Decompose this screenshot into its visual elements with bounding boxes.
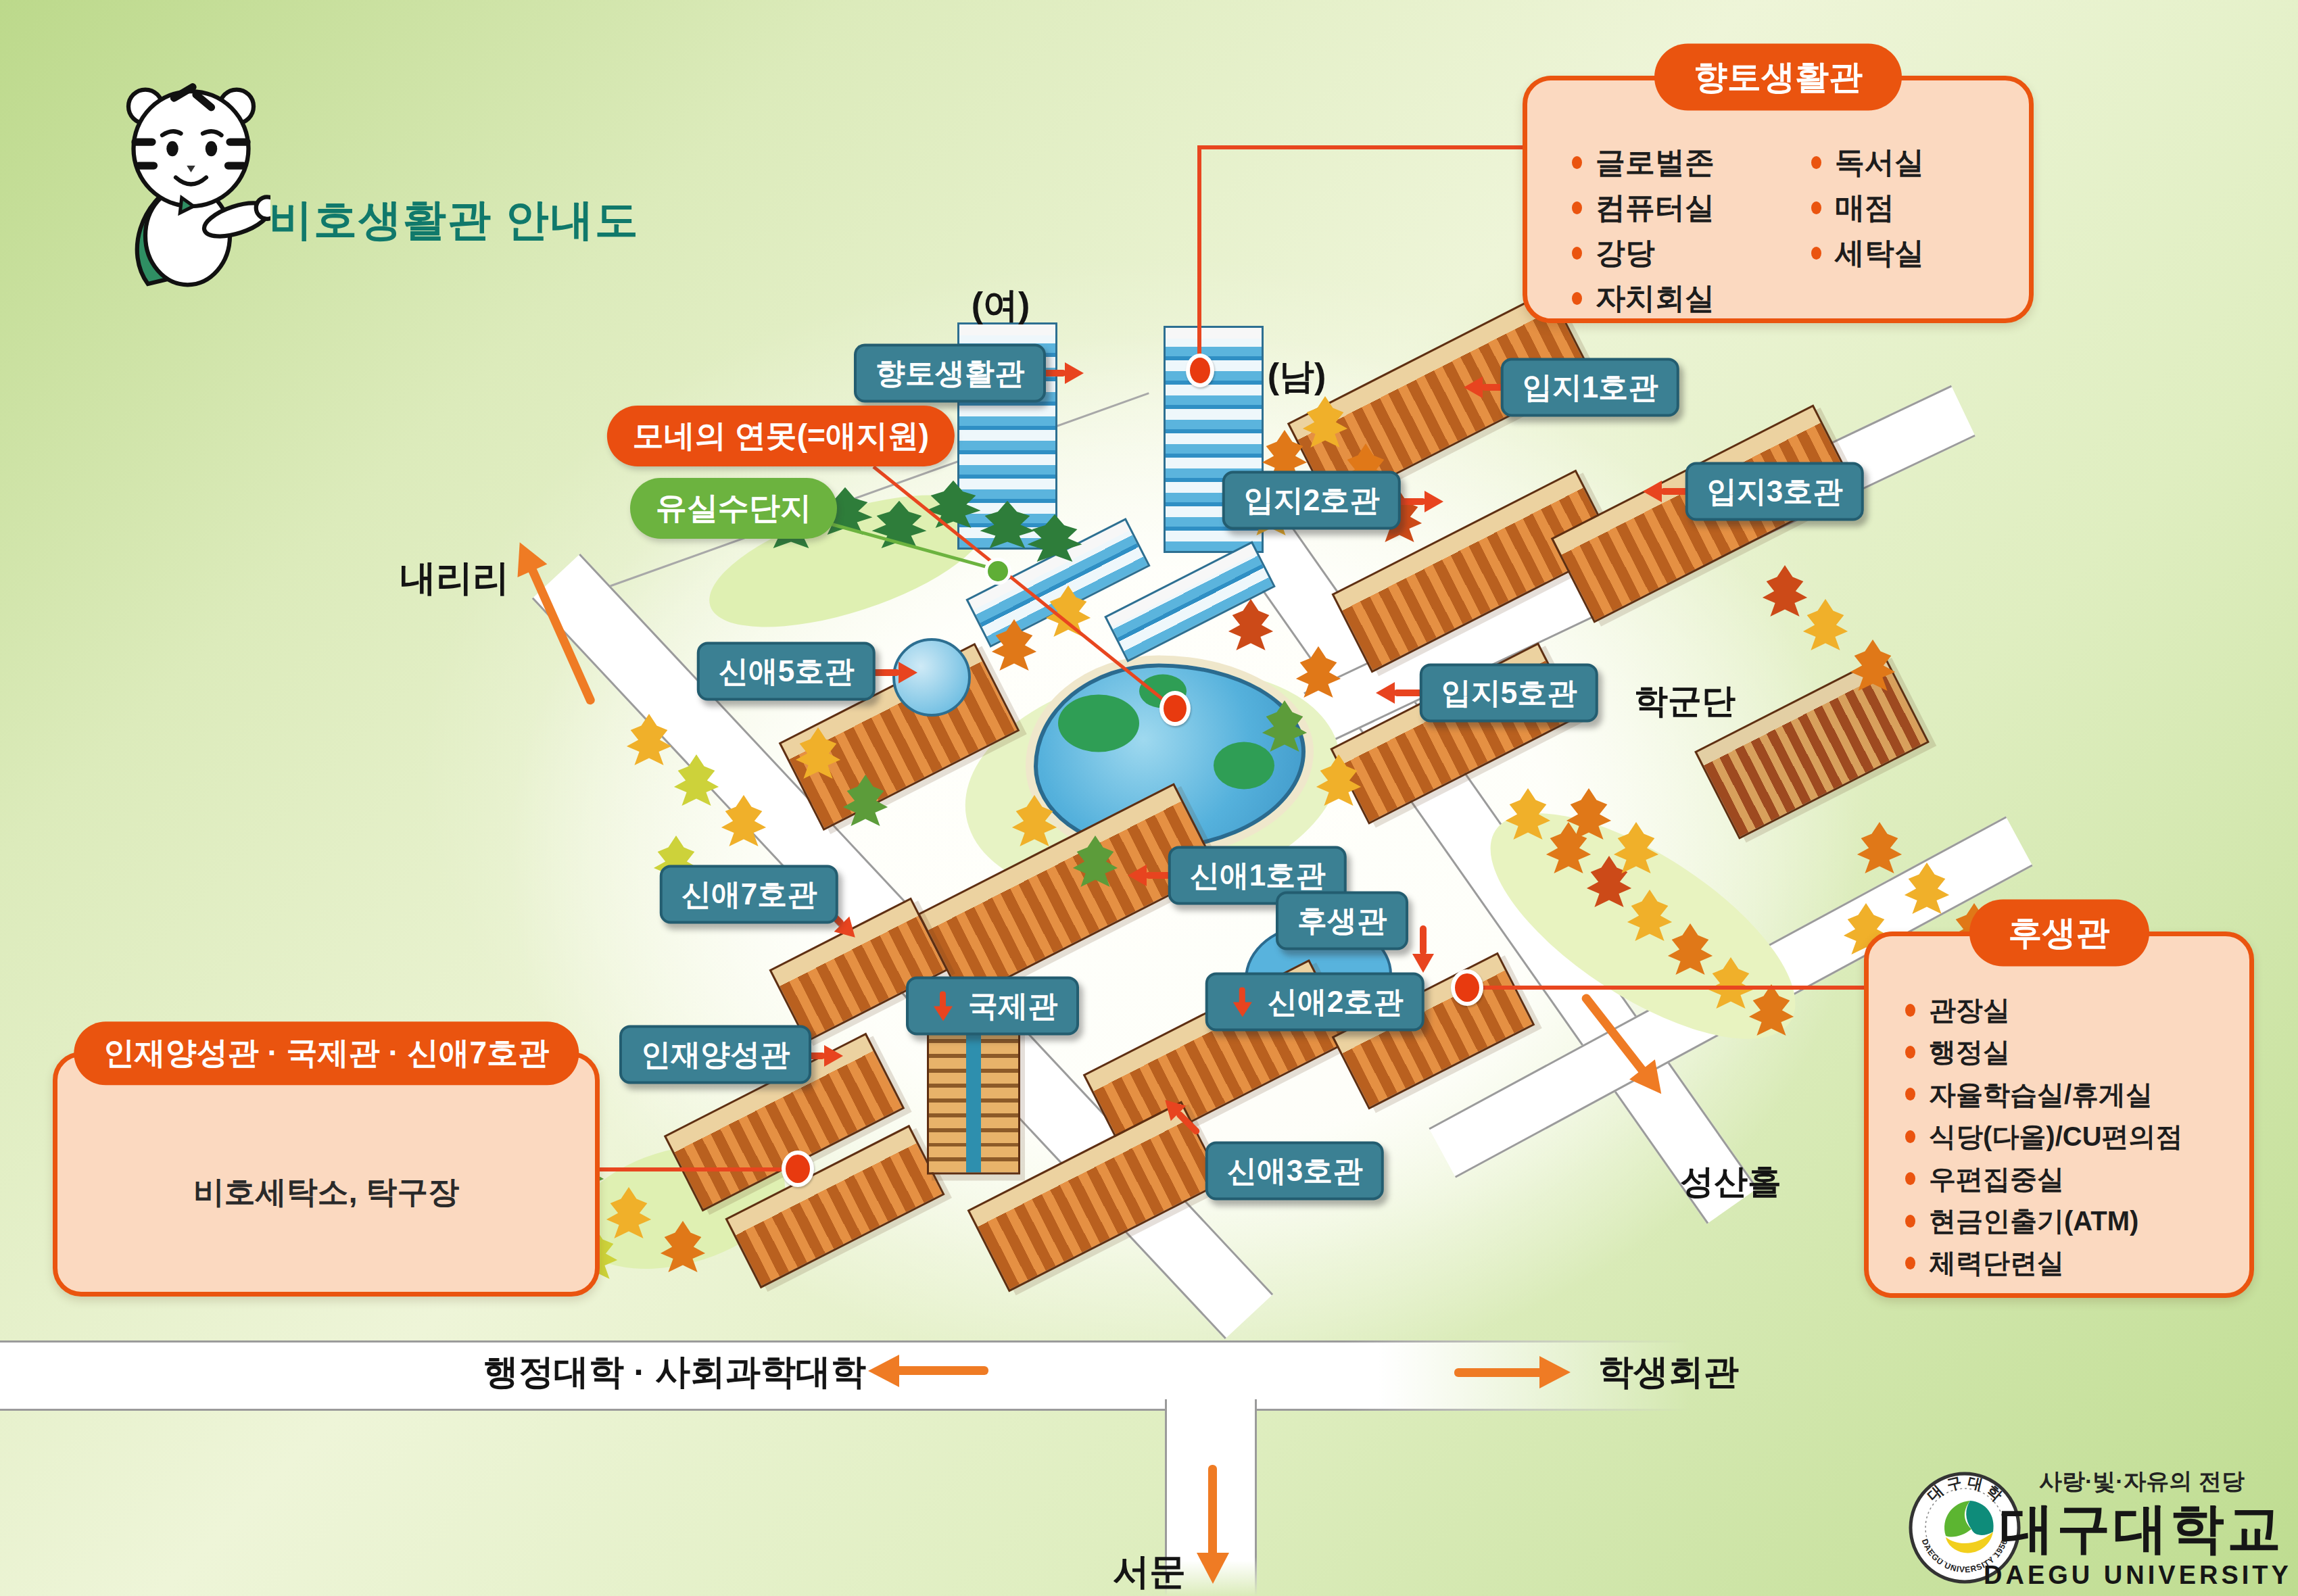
pill-pond-text: 모네의 연못(=애지원) <box>633 418 929 453</box>
list-item-text: 현금인출기(ATM) <box>1929 1200 2138 1242</box>
list-item: 행정실 <box>1905 1031 2183 1073</box>
list-item: 세탁실 <box>1811 231 1924 276</box>
list-item: 매점 <box>1811 185 1924 231</box>
pill-orchard: 유실수단지 <box>630 478 837 539</box>
list-item: 자치회실 <box>1572 276 1715 321</box>
pointer-arrow-ipji3 <box>1643 477 1690 506</box>
list-item: 글로벌존 <box>1572 140 1715 185</box>
text-colleges: 행정대학 · 사회과학대학 <box>483 1349 866 1396</box>
callout-huseang-title: 후생관 <box>1969 900 2149 967</box>
label-ipji2: 입지2호관 <box>1222 471 1401 530</box>
label-hyangto-text: 향토생활관 <box>876 356 1024 389</box>
label-ipji5: 입지5호관 <box>1420 664 1598 723</box>
callout-huseang: 후생관 관장실 행정실 자율학습실/휴게실 식당(다올)/CU편의점 우편집중실… <box>1864 932 2254 1298</box>
list-item-text: 식당(다올)/CU편의점 <box>1929 1115 2183 1157</box>
arrow-student-hall <box>1454 1356 1571 1388</box>
label-ipji3-text: 입지3호관 <box>1707 475 1842 508</box>
list-item: 관장실 <box>1905 989 2183 1031</box>
marker-dot-huseang <box>1451 969 1483 1006</box>
list-item-text: 매점 <box>1835 185 1894 231</box>
pointer-arrow-sinae5 <box>870 658 917 687</box>
list-item-text: 독서실 <box>1835 140 1924 185</box>
connector-hyangto-vertical <box>1197 147 1201 370</box>
connector-hyangto-horizontal <box>1197 145 1524 149</box>
connector-huseang <box>1468 986 1864 990</box>
list-item: 컴퓨터실 <box>1572 185 1715 231</box>
pill-pond: 모네의 연못(=애지원) <box>607 406 955 466</box>
callout-hyangto-title: 향토생활관 <box>1654 44 1902 111</box>
pointer-arrow-ipji5 <box>1376 678 1423 708</box>
list-item: 우편집중실 <box>1905 1158 2183 1200</box>
label-sinae5: 신애5호관 <box>697 642 876 701</box>
marker-dot-pond <box>1159 691 1191 726</box>
list-item-text: 행정실 <box>1929 1031 2010 1073</box>
label-sinae2: 신애2호관 <box>1205 973 1425 1032</box>
label-gukje: 국제관 <box>906 977 1079 1036</box>
list-item-text: 글로벌존 <box>1596 140 1715 185</box>
text-male-dorm: (남) <box>1268 353 1326 400</box>
label-ipji3: 입지3호관 <box>1685 462 1864 521</box>
list-item: 현금인출기(ATM) <box>1905 1200 2183 1242</box>
marker-dot-injae <box>782 1151 814 1187</box>
label-sinae7: 신애7호관 <box>660 865 838 924</box>
text-naeriri: 내리리 <box>400 554 509 603</box>
pointer-arrow-sinae2 <box>1227 986 1258 1017</box>
pill-orchard-text: 유실수단지 <box>656 490 811 525</box>
label-huseang: 후생관 <box>1276 892 1408 950</box>
list-item: 독서실 <box>1811 140 1924 185</box>
label-injae: 인재양성관 <box>619 1025 811 1084</box>
text-hakgundan: 학군단 <box>1634 679 1736 724</box>
marker-dot-orchard <box>984 558 1011 585</box>
callout-hyangto-list-left: 글로벌존 컴퓨터실 강당 자치회실 <box>1572 140 1715 321</box>
campus-map-poster: 향토생활관 입지1호관 입지2호관 입지3호관 신애5호관 입지5호관 신애1호… <box>0 0 2298 1596</box>
connector-injae <box>590 1167 799 1171</box>
tiger-mascot-icon <box>101 54 270 291</box>
autumn-tree-icon <box>1855 822 1904 876</box>
label-injae-text: 인재양성관 <box>641 1038 790 1071</box>
list-item-text: 자율학습실/휴게실 <box>1929 1073 2153 1115</box>
label-sinae7-text: 신애7호관 <box>681 877 817 911</box>
label-sinae5-text: 신애5호관 <box>719 654 854 687</box>
text-student-hall: 학생회관 <box>1598 1349 1739 1396</box>
list-item-text: 강당 <box>1596 231 1655 276</box>
arrow-west-gate <box>1197 1465 1229 1584</box>
label-sinae2-text: 신애2호관 <box>1268 985 1403 1018</box>
callout-huseang-list: 관장실 행정실 자율학습실/휴게실 식당(다올)/CU편의점 우편집중실 현금인… <box>1905 989 2183 1284</box>
logo-university-name-en: DAEGU UNIVERSITY <box>1984 1561 2292 1590</box>
list-item-text: 자치회실 <box>1596 276 1715 321</box>
callout-hyangto-list-right: 독서실 매점 세탁실 <box>1811 140 1924 276</box>
list-item-text: 컴퓨터실 <box>1596 185 1715 231</box>
label-ipji1: 입지1호관 <box>1501 358 1679 417</box>
label-sinae1-text: 신애1호관 <box>1190 859 1325 892</box>
label-sinae3-text: 신애3호관 <box>1227 1154 1362 1187</box>
callout-hyangto: 향토생활관 글로벌존 컴퓨터실 강당 자치회실 독서실 매점 세탁실 <box>1523 76 2034 323</box>
marker-dot-hyangto <box>1186 354 1214 387</box>
callout-injae: 인재양성관 · 국제관 · 신애7호관 비호세탁소, 탁구장 <box>53 1052 600 1297</box>
list-item: 식당(다올)/CU편의점 <box>1905 1115 2183 1157</box>
list-item-text: 체력단련실 <box>1929 1242 2064 1284</box>
label-ipji5-text: 입지5호관 <box>1441 676 1577 709</box>
list-item-text: 세탁실 <box>1835 231 1924 276</box>
label-gukje-text: 국제관 <box>968 989 1057 1022</box>
list-item: 체력단련실 <box>1905 1242 2183 1284</box>
arrow-colleges <box>868 1355 988 1387</box>
logo-university-name-kr: 대구대학교 <box>2000 1493 2284 1566</box>
label-hyangto: 향토생활관 <box>854 344 1046 403</box>
list-item: 강당 <box>1572 231 1715 276</box>
text-west-gate: 서문 <box>1113 1547 1186 1596</box>
pointer-arrow-huseang <box>1408 925 1438 973</box>
callout-injae-content: 비호세탁소, 탁구장 <box>57 1171 595 1213</box>
list-item-text: 관장실 <box>1929 989 2010 1031</box>
label-sinae3: 신애3호관 <box>1205 1142 1384 1201</box>
text-seongsan-hall: 성산홀 <box>1680 1159 1781 1205</box>
label-ipji1-text: 입지1호관 <box>1523 370 1658 404</box>
pointer-arrow-gukje <box>928 990 959 1021</box>
pointer-arrow-ipji2 <box>1396 487 1443 516</box>
list-item-text: 우편집중실 <box>1929 1158 2064 1200</box>
text-female-dorm: (여) <box>972 282 1030 329</box>
list-item: 자율학습실/휴게실 <box>1905 1073 2183 1115</box>
label-ipji2-text: 입지2호관 <box>1244 483 1379 516</box>
callout-injae-title: 인재양성관 · 국제관 · 신애7호관 <box>74 1021 579 1085</box>
label-huseang-text: 후생관 <box>1297 904 1387 937</box>
page-title: 비호생활관 안내도 <box>269 191 640 249</box>
